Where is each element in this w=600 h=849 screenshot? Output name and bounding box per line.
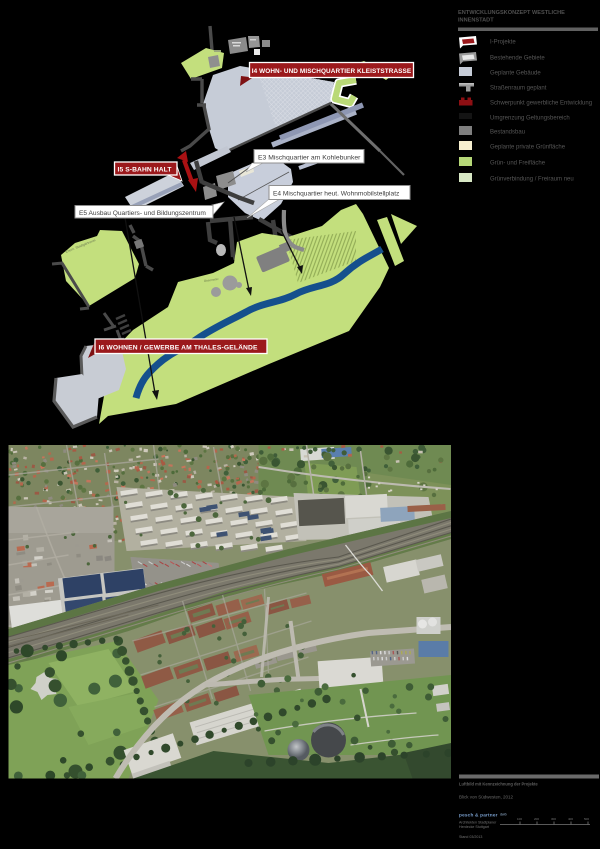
svg-text:I6 WOHNEN / GEWERBE AM THA: I6 WOHNEN / GEWERBE AM THALES-GELÄNDE	[99, 344, 259, 352]
svg-text:pesch & partner: pesch & partner	[459, 813, 498, 818]
svg-text:ENTWICKLUNGSKONZEPT WESTLICHE: ENTWICKLUNGSKONZEPT WESTLICHE	[458, 10, 565, 16]
svg-text:dwb: dwb	[500, 813, 507, 817]
svg-text:200: 200	[534, 817, 539, 821]
svg-text:Geplante Gebäude: Geplante Gebäude	[490, 71, 541, 77]
svg-text:Umgrenzung Geltungsbereich: Umgrenzung Geltungsbereich	[490, 116, 570, 122]
svg-text:Bestandsbau: Bestandsbau	[490, 130, 525, 136]
svg-text:100: 100	[517, 817, 522, 821]
svg-text:400: 400	[568, 817, 573, 821]
svg-text:Grünverbindung / Freiraum neu: Grünverbindung / Freiraum neu	[490, 177, 574, 183]
svg-text:E4 Mischquartier heut. Wohnmob: E4 Mischquartier heut. Wohnmobilstellpla…	[273, 191, 399, 198]
svg-text:INNENSTADT: INNENSTADT	[458, 18, 494, 24]
svg-text:I5 S-BAHN HALT: I5 S-BAHN HALT	[118, 167, 173, 174]
svg-text:Herdecke Stuttgart: Herdecke Stuttgart	[459, 825, 489, 829]
svg-text:Stand 03/2013: Stand 03/2013	[459, 835, 482, 839]
svg-text:Straßenraum geplant: Straßenraum geplant	[490, 86, 547, 92]
svg-text:Geplante private Grünfläche: Geplante private Grünfläche	[490, 145, 566, 151]
svg-text:Bestehende Gebiete: Bestehende Gebiete	[490, 56, 545, 62]
svg-text:500: 500	[584, 817, 589, 821]
svg-text:E5 Ausbau Quartiers- und Bildu: E5 Ausbau Quartiers- und Bildungszentrum	[79, 210, 206, 217]
svg-text:Architekten Stadtplaner: Architekten Stadtplaner	[459, 821, 497, 825]
svg-text:Blick von Südwesten, 2012: Blick von Südwesten, 2012	[459, 795, 514, 800]
svg-text:Schwerpunkt gewerbliche Entwic: Schwerpunkt gewerbliche Entwicklung	[490, 101, 592, 107]
svg-text:300: 300	[551, 817, 556, 821]
svg-text:E3 Mischquartier am Kohlebunke: E3 Mischquartier am Kohlebunker	[258, 154, 361, 161]
svg-text:I4 WOHN- UND MISCHQUARTIER: I4 WOHN- UND MISCHQUARTIER KLEISTSTRASSE	[252, 68, 412, 75]
svg-text:Luftbild mit Kennzeichnung der: Luftbild mit Kennzeichnung der Projekte	[459, 782, 538, 787]
svg-text:I-Projekte: I-Projekte	[490, 40, 516, 46]
svg-text:Grün- und Freifläche: Grün- und Freifläche	[490, 161, 546, 167]
